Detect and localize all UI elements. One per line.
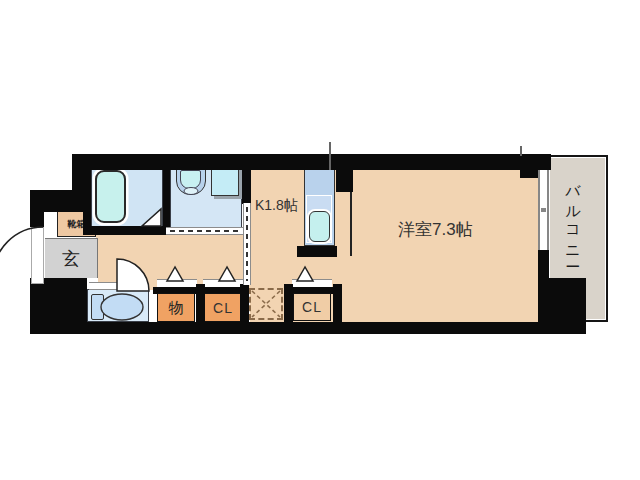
- closet-hall-door-triangle: [219, 267, 235, 281]
- storage-door-triangle: [167, 267, 183, 281]
- refrigerator-space-cross-1: [252, 291, 280, 317]
- toilet-door-swing: [117, 259, 149, 291]
- entrance-door-arc: [0, 227, 43, 277]
- closet-room-door-triangle: [297, 267, 313, 281]
- symbols-overlay: [0, 0, 640, 480]
- kitchen-label: K1.8帖: [255, 198, 298, 212]
- bathroom-door-triangle: [142, 209, 161, 226]
- main-room-label: 洋室7.3帖: [398, 221, 473, 238]
- refrigerator-space-cross-2: [252, 291, 280, 317]
- toilet-bowl: [101, 294, 143, 320]
- wash-basin-drain: [184, 188, 198, 195]
- floorplan-canvas: バルコニー 靴箱 玄 物 CL CL: [0, 0, 640, 480]
